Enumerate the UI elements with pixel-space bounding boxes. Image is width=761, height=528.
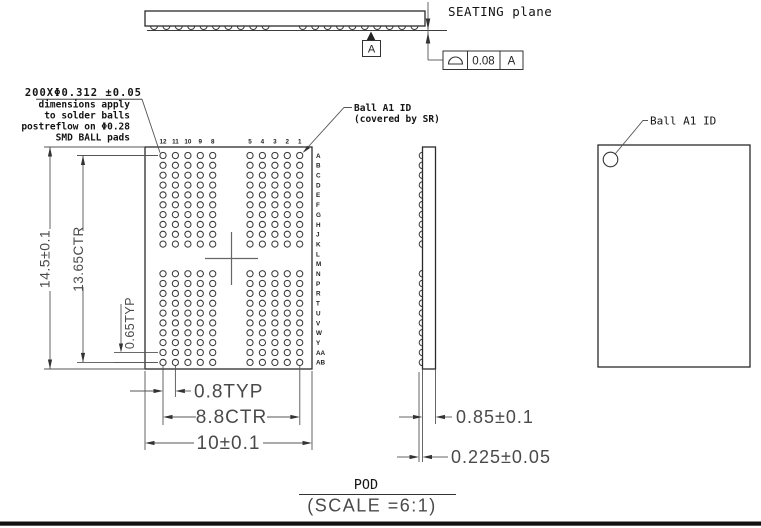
column-label-5: 5 bbox=[248, 139, 252, 146]
solder-ball bbox=[210, 300, 216, 306]
solder-ball bbox=[284, 340, 290, 346]
solder-ball bbox=[172, 162, 178, 168]
solder-ball bbox=[197, 359, 203, 365]
drawing-canvas: SEATING plane A 0.08 A 1211109854321ABCD… bbox=[0, 0, 761, 528]
solder-ball bbox=[160, 172, 166, 178]
arrow-down-icon bbox=[426, 19, 431, 30]
column-label-10: 10 bbox=[184, 139, 192, 146]
note-line-4: postreflow on Φ0.28 bbox=[21, 122, 130, 133]
row-label-F: F bbox=[316, 202, 320, 209]
solder-ball bbox=[210, 349, 216, 355]
solder-ball bbox=[160, 221, 166, 227]
solder-ball bbox=[247, 182, 253, 188]
solder-ball bbox=[297, 202, 303, 208]
bottom-dimensions: 0.8TYP 8.8CTR 10±0.1 bbox=[130, 366, 312, 454]
solder-ball bbox=[197, 202, 203, 208]
dim-arrow-icon bbox=[423, 455, 433, 459]
row-label-Y: Y bbox=[316, 340, 321, 347]
solder-ball bbox=[297, 280, 303, 286]
solder-ball bbox=[284, 310, 290, 316]
row-label-T: T bbox=[316, 301, 320, 308]
solder-ball bbox=[297, 359, 303, 365]
column-label-1: 1 bbox=[298, 139, 302, 146]
solder-ball bbox=[272, 271, 278, 277]
solder-ball bbox=[272, 152, 278, 158]
solder-ball bbox=[172, 192, 178, 198]
fcf-datum-ref: A bbox=[508, 56, 516, 68]
solder-ball bbox=[185, 231, 191, 237]
solder-ball bbox=[210, 340, 216, 346]
package-side-outline bbox=[145, 11, 425, 26]
dim-col-pitch: 0.8TYP bbox=[194, 382, 263, 403]
solder-ball bbox=[185, 320, 191, 326]
solder-ball bbox=[272, 359, 278, 365]
solder-ball bbox=[160, 359, 166, 365]
solder-ball bbox=[185, 330, 191, 336]
solder-ball bbox=[284, 241, 290, 247]
solder-ball bbox=[197, 231, 203, 237]
solder-ball bbox=[272, 310, 278, 316]
solder-ball bbox=[197, 330, 203, 336]
solder-ball bbox=[210, 152, 216, 158]
note-leader-line bbox=[142, 99, 160, 152]
solder-ball bbox=[210, 212, 216, 218]
row-label-AB: AB bbox=[316, 360, 326, 367]
solder-ball bbox=[185, 212, 191, 218]
solder-ball bbox=[210, 241, 216, 247]
scale-note: (SCALE =6:1) bbox=[307, 496, 437, 516]
view-caption: POD (SCALE =6:1) bbox=[299, 477, 456, 516]
top-package-view: Ball A1 ID bbox=[598, 115, 750, 368]
solder-ball bbox=[185, 359, 191, 365]
row-label-D: D bbox=[316, 182, 321, 189]
solder-ball bbox=[259, 330, 265, 336]
solder-ball bbox=[284, 320, 290, 326]
solder-ball bbox=[272, 182, 278, 188]
solder-ball bbox=[297, 152, 303, 158]
solder-ball bbox=[284, 349, 290, 355]
ball-a1-top-label: Ball A1 ID bbox=[650, 115, 716, 128]
solder-ball bbox=[185, 152, 191, 158]
dim-row-pitch: 0.65TYP bbox=[123, 297, 137, 349]
solder-ball bbox=[284, 271, 290, 277]
solder-ball bbox=[172, 330, 178, 336]
dim-thickness: 0.85±0.1 bbox=[456, 407, 534, 427]
solder-ball bbox=[284, 330, 290, 336]
ball-size-note: 200XΦ0.312 ±0.05 dimensions apply to sol… bbox=[21, 87, 160, 153]
solder-ball bbox=[197, 152, 203, 158]
solder-ball bbox=[297, 271, 303, 277]
solder-ball bbox=[247, 192, 253, 198]
solder-ball bbox=[259, 212, 265, 218]
row-label-E: E bbox=[316, 192, 320, 199]
solder-ball bbox=[247, 300, 253, 306]
solder-ball bbox=[259, 231, 265, 237]
row-label-R: R bbox=[316, 291, 321, 298]
solder-ball bbox=[172, 231, 178, 237]
dim-arrow-icon bbox=[81, 156, 85, 166]
solder-ball bbox=[172, 320, 178, 326]
solder-ball bbox=[259, 349, 265, 355]
solder-ball bbox=[172, 310, 178, 316]
solder-ball bbox=[197, 290, 203, 296]
solder-ball bbox=[197, 192, 203, 198]
solder-ball bbox=[259, 300, 265, 306]
solder-ball bbox=[247, 241, 253, 247]
row-label-B: B bbox=[316, 163, 321, 170]
row-label-K: K bbox=[316, 241, 321, 248]
solder-ball bbox=[297, 330, 303, 336]
solder-ball bbox=[284, 221, 290, 227]
solder-ball bbox=[160, 162, 166, 168]
solder-ball bbox=[284, 212, 290, 218]
solder-ball bbox=[185, 300, 191, 306]
solder-ball bbox=[259, 271, 265, 277]
solder-ball bbox=[160, 300, 166, 306]
column-label-12: 12 bbox=[159, 139, 167, 146]
solder-ball bbox=[272, 172, 278, 178]
solder-ball bbox=[160, 212, 166, 218]
solder-ball bbox=[172, 271, 178, 277]
solder-ball bbox=[247, 359, 253, 365]
dim-arrow-icon bbox=[48, 360, 52, 370]
solder-ball bbox=[247, 221, 253, 227]
row-label-W: W bbox=[316, 330, 322, 337]
solder-ball bbox=[297, 290, 303, 296]
solder-ball bbox=[272, 192, 278, 198]
datum-label: A bbox=[368, 44, 376, 56]
a1-note-line-1: Ball A1 ID bbox=[354, 103, 411, 114]
dim-arrow-icon bbox=[413, 415, 423, 419]
row-label-V: V bbox=[316, 320, 321, 327]
solder-ball bbox=[272, 212, 278, 218]
arrow-up-icon bbox=[426, 32, 431, 43]
solder-ball bbox=[185, 340, 191, 346]
dim-height-ctr: 13.65CTR bbox=[71, 226, 86, 292]
dim-arrow-icon bbox=[163, 415, 173, 419]
dim-arrow-icon bbox=[154, 389, 164, 393]
solder-ball bbox=[210, 330, 216, 336]
column-label-9: 9 bbox=[199, 139, 203, 146]
solder-ball bbox=[185, 221, 191, 227]
row-label-G: G bbox=[316, 212, 321, 219]
solder-ball bbox=[185, 172, 191, 178]
solder-ball bbox=[259, 221, 265, 227]
solder-ball bbox=[210, 202, 216, 208]
solder-ball bbox=[210, 359, 216, 365]
solder-ball bbox=[197, 349, 203, 355]
solder-ball bbox=[247, 152, 253, 158]
a1-leader-line bbox=[304, 108, 353, 153]
solder-ball bbox=[272, 202, 278, 208]
solder-ball bbox=[197, 172, 203, 178]
solder-ball bbox=[172, 221, 178, 227]
solder-ball bbox=[247, 271, 253, 277]
solder-ball bbox=[185, 290, 191, 296]
solder-ball bbox=[272, 349, 278, 355]
solder-ball bbox=[297, 221, 303, 227]
engineering-drawing-pod: SEATING plane A 0.08 A 1211109854321ABCD… bbox=[0, 0, 761, 528]
solder-ball bbox=[160, 192, 166, 198]
solder-ball bbox=[247, 290, 253, 296]
solder-ball bbox=[272, 241, 278, 247]
solder-ball bbox=[259, 359, 265, 365]
solder-ball bbox=[197, 221, 203, 227]
solder-ball bbox=[185, 280, 191, 286]
solder-ball bbox=[210, 192, 216, 198]
column-label-2: 2 bbox=[286, 139, 290, 146]
solder-ball bbox=[160, 290, 166, 296]
ball-map-view: 1211109854321ABCDEFGHJKLMNPRTUVWYAAAB bbox=[145, 139, 326, 370]
dim-ball-height: 0.225±0.05 bbox=[451, 447, 551, 467]
column-label-4: 4 bbox=[261, 139, 265, 146]
dim-arrow-icon bbox=[303, 441, 313, 445]
solder-ball bbox=[172, 290, 178, 296]
solder-ball bbox=[172, 202, 178, 208]
solder-ball bbox=[247, 162, 253, 168]
solder-ball bbox=[272, 330, 278, 336]
solder-ball bbox=[297, 182, 303, 188]
solder-ball bbox=[259, 290, 265, 296]
row-label-U: U bbox=[316, 310, 321, 317]
solder-ball bbox=[259, 310, 265, 316]
dim-width: 10±0.1 bbox=[197, 433, 261, 454]
solder-ball bbox=[172, 152, 178, 158]
solder-ball bbox=[172, 340, 178, 346]
solder-ball bbox=[284, 359, 290, 365]
solder-ball bbox=[160, 271, 166, 277]
dim-arrow-icon bbox=[48, 147, 52, 157]
solder-ball bbox=[185, 192, 191, 198]
dim-arrow-icon bbox=[145, 441, 155, 445]
solder-ball bbox=[284, 290, 290, 296]
column-label-8: 8 bbox=[211, 139, 215, 146]
solder-ball bbox=[247, 172, 253, 178]
datum-feature: A bbox=[363, 32, 381, 57]
solder-ball bbox=[272, 290, 278, 296]
note-line-5: SMD BALL pads bbox=[56, 133, 130, 144]
row-label-J: J bbox=[316, 232, 320, 239]
a1-note-line-2: (covered by SR) bbox=[354, 114, 440, 125]
solder-ball bbox=[160, 320, 166, 326]
solder-ball bbox=[297, 192, 303, 198]
row-label-P: P bbox=[316, 281, 320, 288]
solder-ball bbox=[259, 162, 265, 168]
solder-ball bbox=[185, 310, 191, 316]
feature-control-frame: 0.08 A bbox=[443, 51, 523, 70]
solder-ball bbox=[259, 202, 265, 208]
column-label-3: 3 bbox=[273, 139, 277, 146]
solder-ball bbox=[259, 192, 265, 198]
solder-ball bbox=[160, 280, 166, 286]
solder-ball bbox=[210, 280, 216, 286]
row-label-C: C bbox=[316, 173, 321, 180]
solder-ball bbox=[272, 340, 278, 346]
solder-ball bbox=[297, 320, 303, 326]
solder-ball bbox=[210, 182, 216, 188]
solder-ball bbox=[197, 212, 203, 218]
solder-ball bbox=[210, 221, 216, 227]
row-label-L: L bbox=[316, 251, 320, 258]
solder-ball bbox=[172, 280, 178, 286]
solder-ball bbox=[284, 182, 290, 188]
solder-ball bbox=[197, 280, 203, 286]
dim-arrow-icon bbox=[175, 389, 185, 393]
solder-ball bbox=[197, 340, 203, 346]
drawing-border bbox=[0, 522, 761, 526]
solder-ball bbox=[272, 162, 278, 168]
solder-ball bbox=[210, 320, 216, 326]
solder-ball bbox=[160, 310, 166, 316]
solder-ball bbox=[284, 192, 290, 198]
solder-ball bbox=[160, 182, 166, 188]
solder-ball bbox=[197, 310, 203, 316]
solder-ball bbox=[247, 349, 253, 355]
solder-ball bbox=[247, 310, 253, 316]
dim-width-ctr: 8.8CTR bbox=[196, 407, 267, 428]
solder-ball bbox=[210, 271, 216, 277]
solder-ball bbox=[259, 182, 265, 188]
seating-plane-label: SEATING plane bbox=[448, 4, 552, 19]
solder-ball bbox=[210, 172, 216, 178]
solder-ball bbox=[172, 212, 178, 218]
solder-ball bbox=[297, 241, 303, 247]
solder-ball bbox=[185, 162, 191, 168]
solder-ball bbox=[284, 172, 290, 178]
left-dimensions: 14.5±0.1 13.65CTR 0.65TYP bbox=[37, 147, 159, 369]
datum-triangle-icon bbox=[367, 32, 376, 41]
solder-ball bbox=[297, 310, 303, 316]
solder-ball bbox=[185, 271, 191, 277]
solder-ball bbox=[160, 349, 166, 355]
solder-ball bbox=[297, 162, 303, 168]
solder-ball bbox=[185, 349, 191, 355]
solder-ball bbox=[297, 172, 303, 178]
solder-ball bbox=[259, 241, 265, 247]
solder-ball bbox=[272, 221, 278, 227]
row-label-N: N bbox=[316, 271, 321, 278]
solder-ball bbox=[172, 241, 178, 247]
solder-ball bbox=[172, 172, 178, 178]
solder-ball bbox=[272, 231, 278, 237]
solder-ball bbox=[247, 330, 253, 336]
solder-ball bbox=[272, 320, 278, 326]
solder-ball bbox=[259, 152, 265, 158]
solder-ball bbox=[160, 231, 166, 237]
note-line-2: dimensions apply bbox=[38, 100, 130, 111]
solder-ball bbox=[284, 231, 290, 237]
row-label-A: A bbox=[316, 153, 321, 160]
dim-arrow-icon bbox=[290, 415, 300, 419]
solder-ball bbox=[160, 202, 166, 208]
solder-ball bbox=[197, 241, 203, 247]
solder-ball bbox=[210, 310, 216, 316]
solder-ball bbox=[247, 202, 253, 208]
package-profile-outline bbox=[423, 147, 436, 369]
note-line-1: 200XΦ0.312 ±0.05 bbox=[25, 87, 142, 99]
fcf-tolerance-value: 0.08 bbox=[472, 56, 494, 68]
solder-ball bbox=[172, 300, 178, 306]
solder-ball bbox=[247, 280, 253, 286]
dim-height: 14.5±0.1 bbox=[37, 230, 53, 288]
solder-ball bbox=[284, 300, 290, 306]
dim-arrow-icon bbox=[81, 353, 85, 363]
solder-ball bbox=[185, 202, 191, 208]
solder-ball bbox=[172, 182, 178, 188]
solder-ball bbox=[272, 280, 278, 286]
solder-ball bbox=[172, 359, 178, 365]
solder-ball bbox=[297, 340, 303, 346]
solder-ball bbox=[197, 182, 203, 188]
ball-a1-note: Ball A1 ID (covered by SR) bbox=[303, 103, 440, 153]
ball-a1-id-marker bbox=[603, 152, 618, 167]
solder-ball bbox=[197, 320, 203, 326]
solder-ball bbox=[210, 290, 216, 296]
side-profile-view: 0.85±0.1 0.225±0.05 bbox=[397, 147, 551, 467]
solder-ball bbox=[247, 320, 253, 326]
solder-ball bbox=[259, 340, 265, 346]
dim-arrow-icon bbox=[436, 415, 446, 419]
solder-ball bbox=[259, 320, 265, 326]
view-title: POD bbox=[354, 477, 378, 493]
solder-ball bbox=[297, 212, 303, 218]
solder-ball bbox=[259, 280, 265, 286]
solder-ball bbox=[185, 241, 191, 247]
solder-ball bbox=[284, 162, 290, 168]
solder-ball bbox=[185, 182, 191, 188]
solder-ball bbox=[284, 152, 290, 158]
column-label-11: 11 bbox=[172, 139, 179, 146]
solder-ball bbox=[160, 152, 166, 158]
solder-ball bbox=[247, 340, 253, 346]
solder-ball bbox=[210, 162, 216, 168]
note-line-3: to solder balls bbox=[44, 111, 130, 122]
solder-ball bbox=[172, 349, 178, 355]
solder-ball bbox=[284, 280, 290, 286]
row-label-H: H bbox=[316, 222, 321, 229]
solder-ball bbox=[210, 231, 216, 237]
solder-ball bbox=[247, 212, 253, 218]
solder-ball bbox=[297, 349, 303, 355]
dim-arrow-icon bbox=[410, 455, 420, 459]
row-label-M: M bbox=[316, 261, 321, 268]
solder-ball bbox=[284, 202, 290, 208]
solder-ball bbox=[297, 300, 303, 306]
solder-ball bbox=[197, 162, 203, 168]
solder-ball bbox=[160, 241, 166, 247]
solder-ball bbox=[297, 231, 303, 237]
solder-ball bbox=[272, 300, 278, 306]
solder-ball bbox=[197, 271, 203, 277]
seating-plane-view: SEATING plane A 0.08 A bbox=[145, 2, 552, 70]
solder-ball bbox=[247, 231, 253, 237]
solder-ball bbox=[160, 340, 166, 346]
solder-ball bbox=[197, 300, 203, 306]
solder-ball bbox=[259, 172, 265, 178]
row-label-AA: AA bbox=[316, 350, 326, 357]
solder-ball bbox=[160, 330, 166, 336]
package-top-outline bbox=[598, 145, 750, 367]
